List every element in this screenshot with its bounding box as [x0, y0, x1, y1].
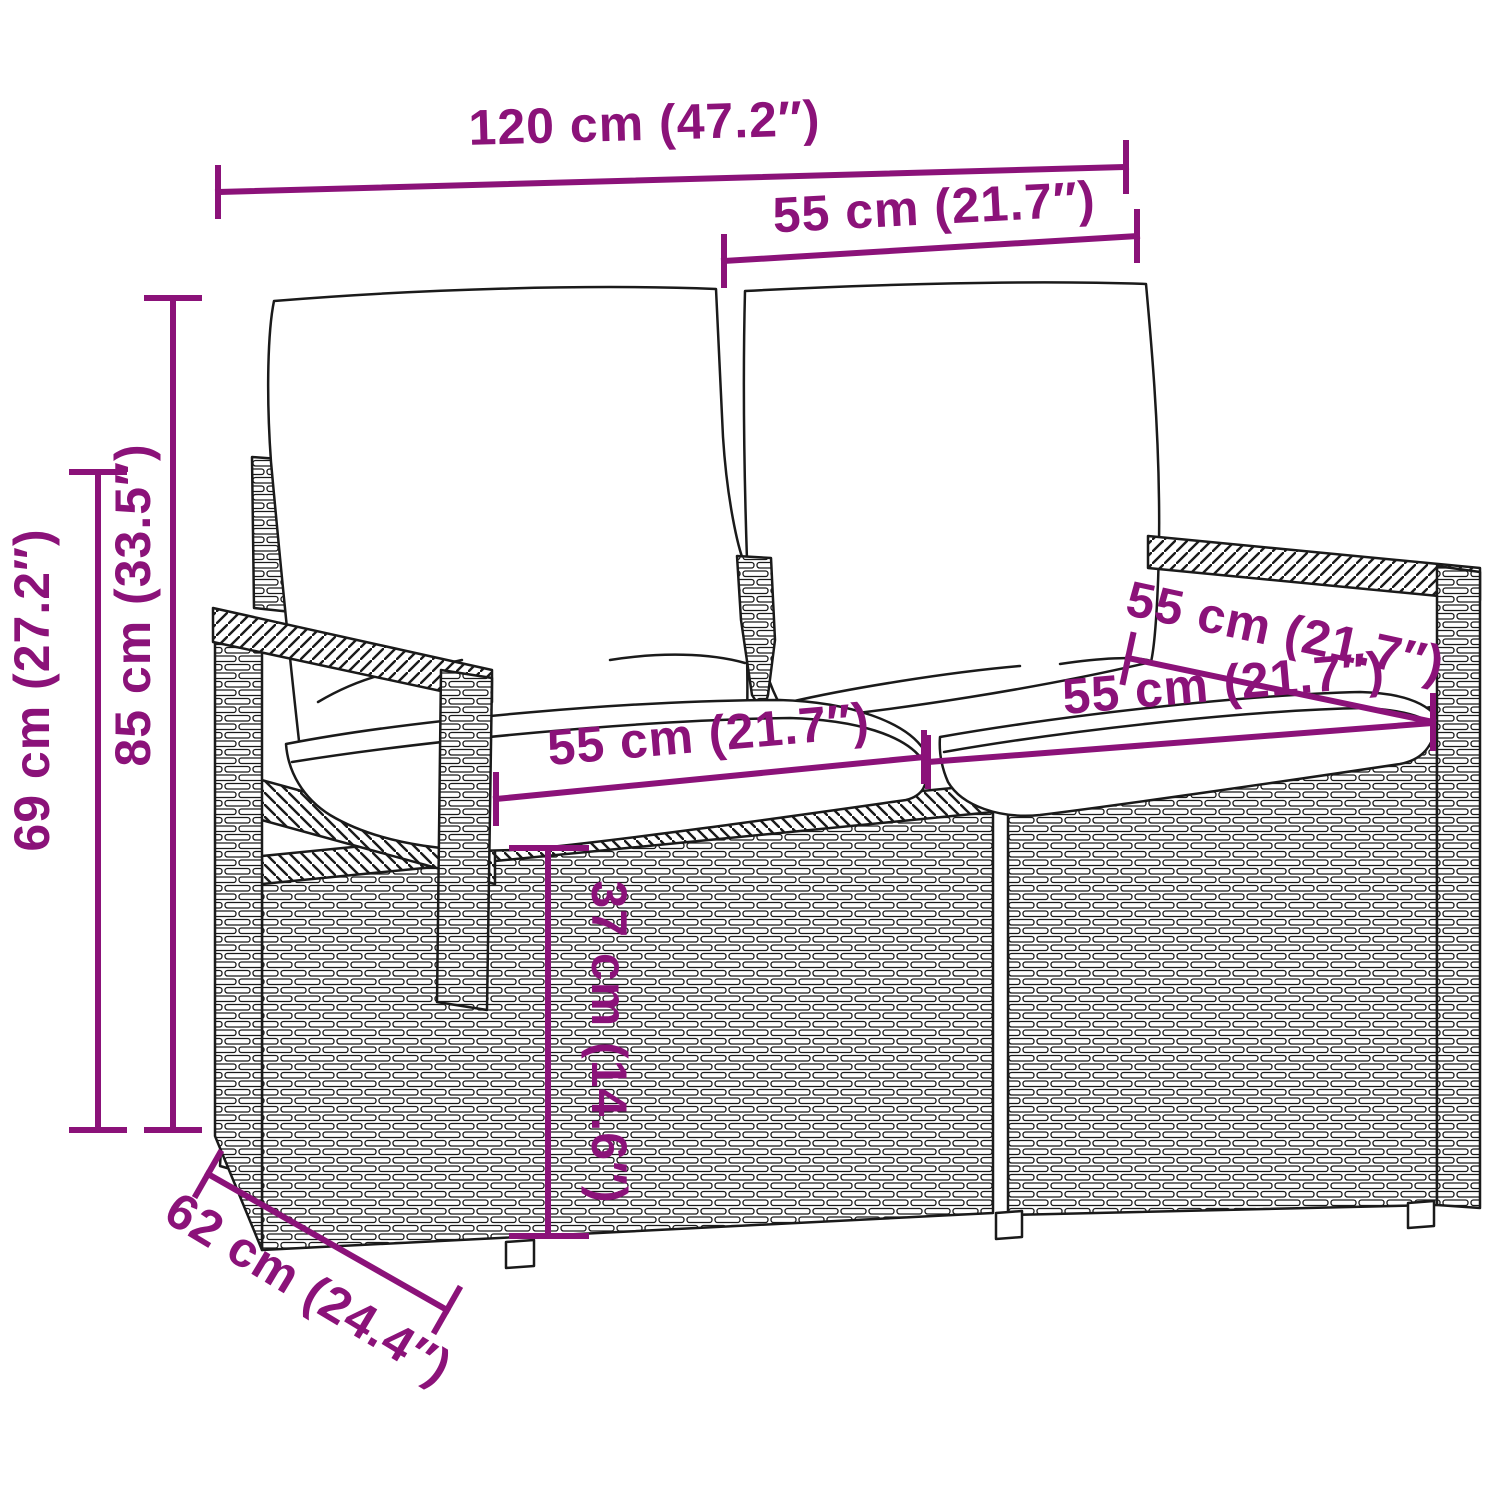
dim-label-seat-height: 37 cm (14.6″)	[581, 880, 637, 1203]
bench-foot	[506, 1240, 534, 1268]
dim-label-back-cushion-width: 55 cm (21.7″)	[771, 171, 1097, 244]
dimension-diagram: 120 cm (47.2″) 55 cm (21.7″) 85 cm (33.5…	[0, 0, 1500, 1500]
bench-foot	[996, 1211, 1022, 1239]
dim-total-height: 85 cm (33.5″)	[105, 298, 199, 1130]
back-cushion-right	[744, 282, 1159, 720]
bench-foot	[1408, 1201, 1434, 1228]
dim-back-cushion-width: 55 cm (21.7″)	[724, 171, 1137, 285]
bench-line-art	[213, 282, 1480, 1268]
dimension-diagram-canvas: 120 cm (47.2″) 55 cm (21.7″) 85 cm (33.5…	[0, 0, 1500, 1500]
left-arm-front-post	[437, 670, 492, 1010]
dim-label-total-width: 120 cm (47.2″)	[468, 90, 821, 156]
dim-label-armrest-height: 69 cm (27.2″)	[4, 528, 60, 851]
dim-label-total-height: 85 cm (33.5″)	[105, 443, 161, 766]
